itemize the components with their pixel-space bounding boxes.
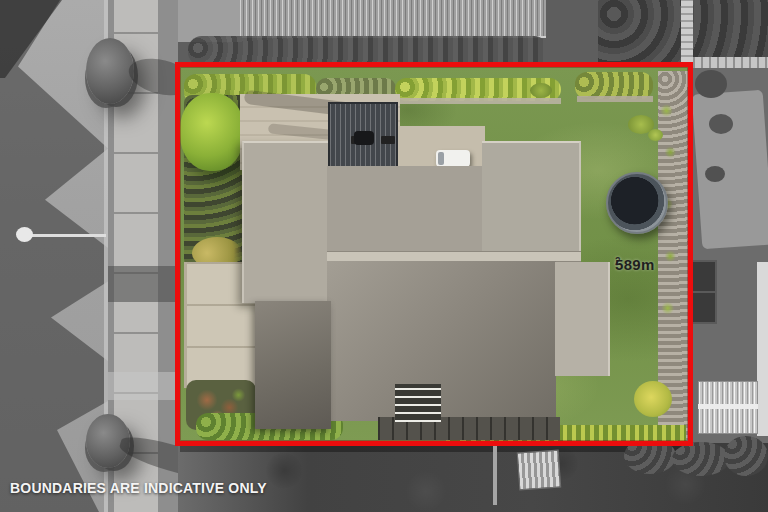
white-gate [517, 450, 562, 491]
bottom-bush [672, 442, 730, 476]
streetlight-arm [26, 234, 106, 237]
neighbor-bushes [695, 70, 727, 98]
neighbor-driveway [692, 90, 768, 250]
driveway-crossing-light [108, 372, 178, 400]
disclaimer-text: BOUNDARIES ARE INDICATIVE ONLY [10, 480, 267, 496]
streetlight-head [16, 227, 33, 242]
fence-vertical [681, 0, 693, 64]
area-value: 589m [615, 256, 655, 273]
aerial-property-photo: 589m2 BOUNDARIES ARE INDICATIVE ONLY [0, 0, 768, 512]
area-label: 589m2 [615, 256, 687, 274]
street-tree [86, 38, 134, 104]
neighbor-roof [240, 0, 546, 38]
property-boundary-outline [175, 62, 693, 446]
utility-pole [493, 443, 497, 505]
driveway-crossing [108, 266, 178, 302]
shed-ridge [698, 404, 758, 409]
neighbor-wall [757, 262, 768, 436]
garden-boxes [690, 260, 717, 324]
bottom-bush [724, 436, 768, 476]
